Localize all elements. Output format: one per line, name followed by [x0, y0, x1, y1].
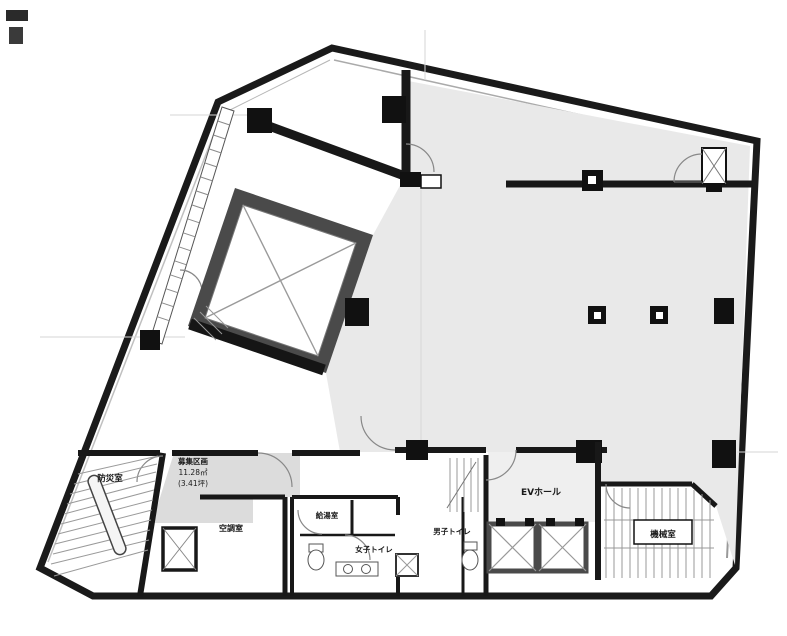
column-core: [594, 312, 601, 319]
room-label-kucho: 空調室: [219, 523, 243, 533]
column-core: [656, 312, 663, 319]
room-label-unit: 募集区画: [177, 456, 208, 466]
room-label-mens-toilet: 男子トイレ: [433, 527, 471, 536]
wall-column: [712, 440, 736, 468]
wall-column: [714, 298, 734, 324]
wall-end-block: [140, 330, 160, 350]
room-label-ev-hall: EVホール: [521, 487, 561, 498]
toilet-bowl: [462, 550, 478, 570]
print-artifact-mark: [6, 10, 28, 44]
sink-basin: [362, 565, 371, 574]
column: [247, 108, 272, 133]
wall-end-block: [400, 172, 421, 187]
sink-basin: [344, 565, 353, 574]
room-label-kyuto: 給湯室: [316, 510, 339, 520]
sink-counter: [336, 562, 378, 576]
toilet-bowl: [308, 550, 324, 570]
unit-area-m2: 11.28㎡: [179, 468, 208, 477]
toilet-tank: [464, 542, 477, 550]
unit-room: 募集区画 11.28㎡ (3.41坪): [177, 456, 208, 488]
room-label-womens-toilet: 女子トイレ: [355, 544, 393, 554]
duct-box: [421, 175, 441, 188]
column: [382, 96, 406, 123]
shaft-corner-block: [345, 298, 369, 326]
floor-plan-page: 防災室 募集区画 11.28㎡ (3.41坪) 空調室 給湯室 女子トイレ 男子…: [0, 0, 787, 636]
floor-plan-canvas: 防災室 募集区画 11.28㎡ (3.41坪) 空調室 給湯室 女子トイレ 男子…: [0, 0, 787, 636]
column-core: [588, 176, 596, 184]
room-label-bousai: 防災室: [97, 473, 123, 484]
room-label-kikai: 機械室: [650, 529, 676, 540]
unit-area-tsubo: (3.41坪): [178, 479, 208, 488]
column: [406, 440, 428, 460]
